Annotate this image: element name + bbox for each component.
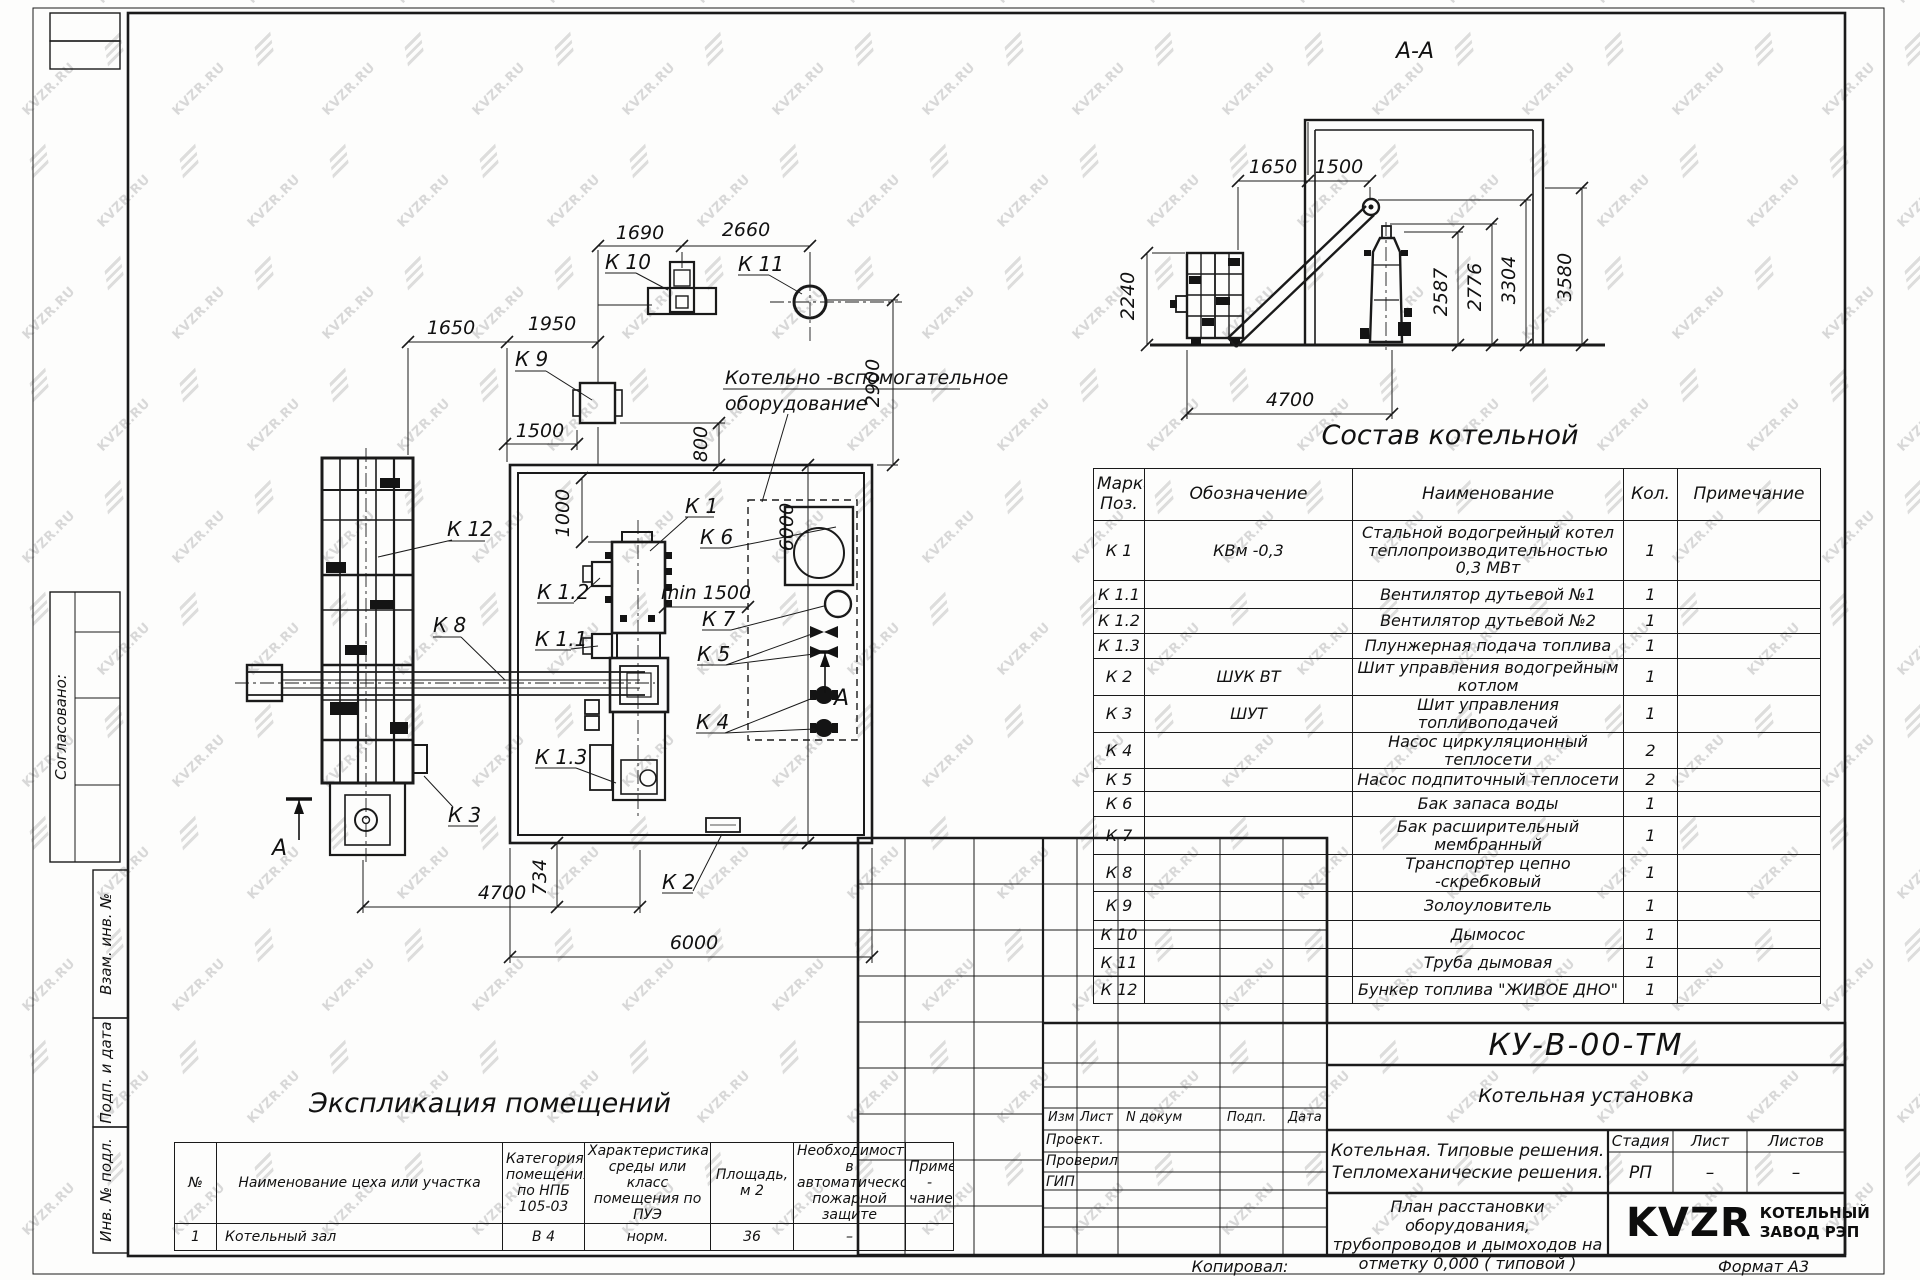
section-letter-left: А bbox=[270, 836, 287, 861]
plan-view bbox=[235, 240, 960, 963]
rev-list: Лист bbox=[1080, 1110, 1113, 1125]
col-category: Категория помещения по НПБ 105-03 bbox=[503, 1143, 585, 1224]
margin-approved: Согласовано: bbox=[52, 592, 70, 862]
explication-table: № Наименование цеха или участка Категори… bbox=[174, 1142, 954, 1251]
section-letter-right: А bbox=[832, 686, 849, 711]
col-area: Площадь, м 2 bbox=[711, 1143, 794, 1224]
kvzr-logo-text: KVZR bbox=[1626, 1200, 1752, 1246]
composition-table: Марка Поз. Обозначение Наименование Кол.… bbox=[1093, 468, 1821, 1004]
object-name: Котельная установка bbox=[1327, 1085, 1845, 1107]
dim-2660: 2660 bbox=[722, 219, 770, 241]
sdim-4700: 4700 bbox=[1266, 389, 1314, 411]
label-k10: К 10 bbox=[605, 250, 651, 274]
format-label: Формат А3 bbox=[1718, 1257, 1848, 1276]
sheet-label: Лист bbox=[1673, 1132, 1747, 1150]
sheets-label: Листов bbox=[1747, 1132, 1845, 1150]
rev-podp: Подп. bbox=[1227, 1110, 1266, 1125]
sdim-2240: 2240 bbox=[1117, 272, 1139, 320]
sheets-value: – bbox=[1747, 1163, 1845, 1183]
table-row: К 6Бак запаса воды1 bbox=[1094, 792, 1821, 817]
table-row: К 7Бак расширительный мембранный1 bbox=[1094, 817, 1821, 855]
stage-value: РП bbox=[1608, 1163, 1673, 1183]
table-row: К 9Золоуловитель1 bbox=[1094, 892, 1821, 921]
rev-ndoc: N докум bbox=[1126, 1110, 1182, 1125]
table-row: К 10Дымосос1 bbox=[1094, 921, 1821, 949]
table-row: К 1КВм -0,3Стальной водогрейный котел те… bbox=[1094, 521, 1821, 581]
sdim-2776: 2776 bbox=[1464, 263, 1486, 311]
dim-1500: 1500 bbox=[516, 420, 564, 442]
section-view bbox=[1141, 120, 1605, 420]
col-note: Примечание bbox=[1678, 469, 1821, 521]
equipment-note-line1: Котельно -вспомогательное bbox=[725, 367, 1008, 389]
col-room-name: Наименование цеха или участка bbox=[217, 1143, 503, 1224]
stage-label: Стадия bbox=[1608, 1132, 1673, 1150]
explication-header-row: № Наименование цеха или участка Категори… bbox=[175, 1143, 954, 1224]
sdim-3580: 3580 bbox=[1554, 253, 1576, 301]
label-k1-2: К 1.2 bbox=[537, 580, 589, 604]
sdim-3304: 3304 bbox=[1498, 256, 1520, 304]
label-k1-3: К 1.3 bbox=[535, 745, 587, 769]
rev-izm: Изм bbox=[1048, 1110, 1074, 1125]
label-k8: К 8 bbox=[433, 613, 466, 637]
table-row: К 3ШУТШит управления топливоподачей1 bbox=[1094, 695, 1821, 732]
dim-734: 734 bbox=[529, 859, 551, 895]
equipment-note-line2: оборудование bbox=[725, 393, 867, 415]
dim-1650: 1650 bbox=[427, 317, 475, 339]
copied-label: Копировал: bbox=[1140, 1257, 1340, 1276]
role-gip: ГИП bbox=[1046, 1174, 1075, 1190]
label-k11: К 11 bbox=[738, 252, 784, 276]
table-row: К 8Транспортер цепно -скребковый1 bbox=[1094, 855, 1821, 892]
sheet-title: План расстановки оборудования, трубопров… bbox=[1327, 1197, 1608, 1273]
section-title: А-А bbox=[1394, 39, 1434, 64]
dim-min-1500: min 1500 bbox=[661, 582, 751, 604]
sheet-value: – bbox=[1673, 1163, 1747, 1183]
sdim-1650: 1650 bbox=[1249, 156, 1297, 178]
doc-number: КУ-В-00-ТМ bbox=[1327, 1028, 1845, 1063]
explication-title: Экспликация помещений bbox=[300, 1088, 680, 1119]
dim-800: 800 bbox=[690, 426, 712, 462]
table-row: К 1.1Вентилятор дутьевой №11 bbox=[1094, 581, 1821, 609]
col-pos: Марка Поз. bbox=[1094, 469, 1145, 521]
col-name: Наименование bbox=[1353, 469, 1624, 521]
table-row: К 11Труба дымовая1 bbox=[1094, 949, 1821, 977]
sdim-2587: 2587 bbox=[1430, 268, 1452, 316]
table-row: 1 Котельный зал В 4 норм. 36 – bbox=[175, 1224, 954, 1251]
col-designation: Обозначение bbox=[1145, 469, 1353, 521]
company-logo: KVZR КОТЕЛЬНЫЙ ЗАВОД РЭП bbox=[1618, 1200, 1842, 1246]
role-project: Проект. bbox=[1046, 1132, 1104, 1148]
label-k6: К 6 bbox=[700, 525, 733, 549]
company-name: КОТЕЛЬНЫЙ ЗАВОД РЭП bbox=[1760, 1204, 1870, 1242]
col-note: Приме - чание bbox=[906, 1143, 954, 1224]
label-k1-1: К 1.1 bbox=[535, 627, 587, 651]
col-fire: Необходимость в автоматической пожарной … bbox=[794, 1143, 906, 1224]
table-row: К 12Бункер топлива "ЖИВОЕ ДНО"1 bbox=[1094, 977, 1821, 1004]
drawing-sheet: KVZR.RUKVZR.RUKVZR.RUKVZR.RUKVZR.RUKVZR.… bbox=[0, 0, 1920, 1280]
role-checked: Проверил bbox=[1046, 1153, 1118, 1169]
label-k12: К 12 bbox=[447, 517, 493, 541]
table-row: К 4Насос циркуляционный теплосети2 bbox=[1094, 732, 1821, 769]
project-solutions: Котельная. Типовые решения. Тепломеханич… bbox=[1327, 1140, 1608, 1184]
dim-6000-b: 6000 bbox=[670, 932, 718, 954]
margin-sign-date: Подп. и дата bbox=[97, 1018, 115, 1127]
dim-1950: 1950 bbox=[528, 313, 576, 335]
table-row: К 5Насос подпиточный теплосети2 bbox=[1094, 769, 1821, 792]
table-row: К 1.3Плунжерная подача топлива1 bbox=[1094, 634, 1821, 659]
rev-data: Дата bbox=[1288, 1110, 1322, 1125]
col-qty: Кол. bbox=[1624, 469, 1678, 521]
dim-1000: 1000 bbox=[552, 489, 574, 537]
table-row: К 2ШУК ВТШит управления водогрейным котл… bbox=[1094, 659, 1821, 696]
sdim-1500: 1500 bbox=[1315, 156, 1363, 178]
table-row: К 1.2Вентилятор дутьевой №21 bbox=[1094, 609, 1821, 634]
composition-header-row: Марка Поз. Обозначение Наименование Кол.… bbox=[1094, 469, 1821, 521]
label-k1: К 1 bbox=[685, 494, 718, 518]
dim-6000-v: 6000 bbox=[776, 503, 798, 551]
label-k4: К 4 bbox=[696, 710, 729, 734]
label-k5: К 5 bbox=[697, 642, 730, 666]
composition-title: Состав котельной bbox=[1250, 420, 1650, 451]
label-k2: К 2 bbox=[662, 870, 695, 894]
margin-inv-orig: Инв. № подл. bbox=[97, 1127, 115, 1253]
margin-subst-inv: Взам. инв. № bbox=[97, 870, 115, 1018]
dim-4700: 4700 bbox=[478, 882, 526, 904]
label-k3: К 3 bbox=[448, 803, 481, 827]
dim-1690: 1690 bbox=[616, 222, 664, 244]
col-num: № bbox=[175, 1143, 217, 1224]
label-k9: К 9 bbox=[515, 347, 548, 371]
label-k7: К 7 bbox=[702, 607, 736, 631]
col-env: Характеристика среды или класс помещения… bbox=[585, 1143, 711, 1224]
